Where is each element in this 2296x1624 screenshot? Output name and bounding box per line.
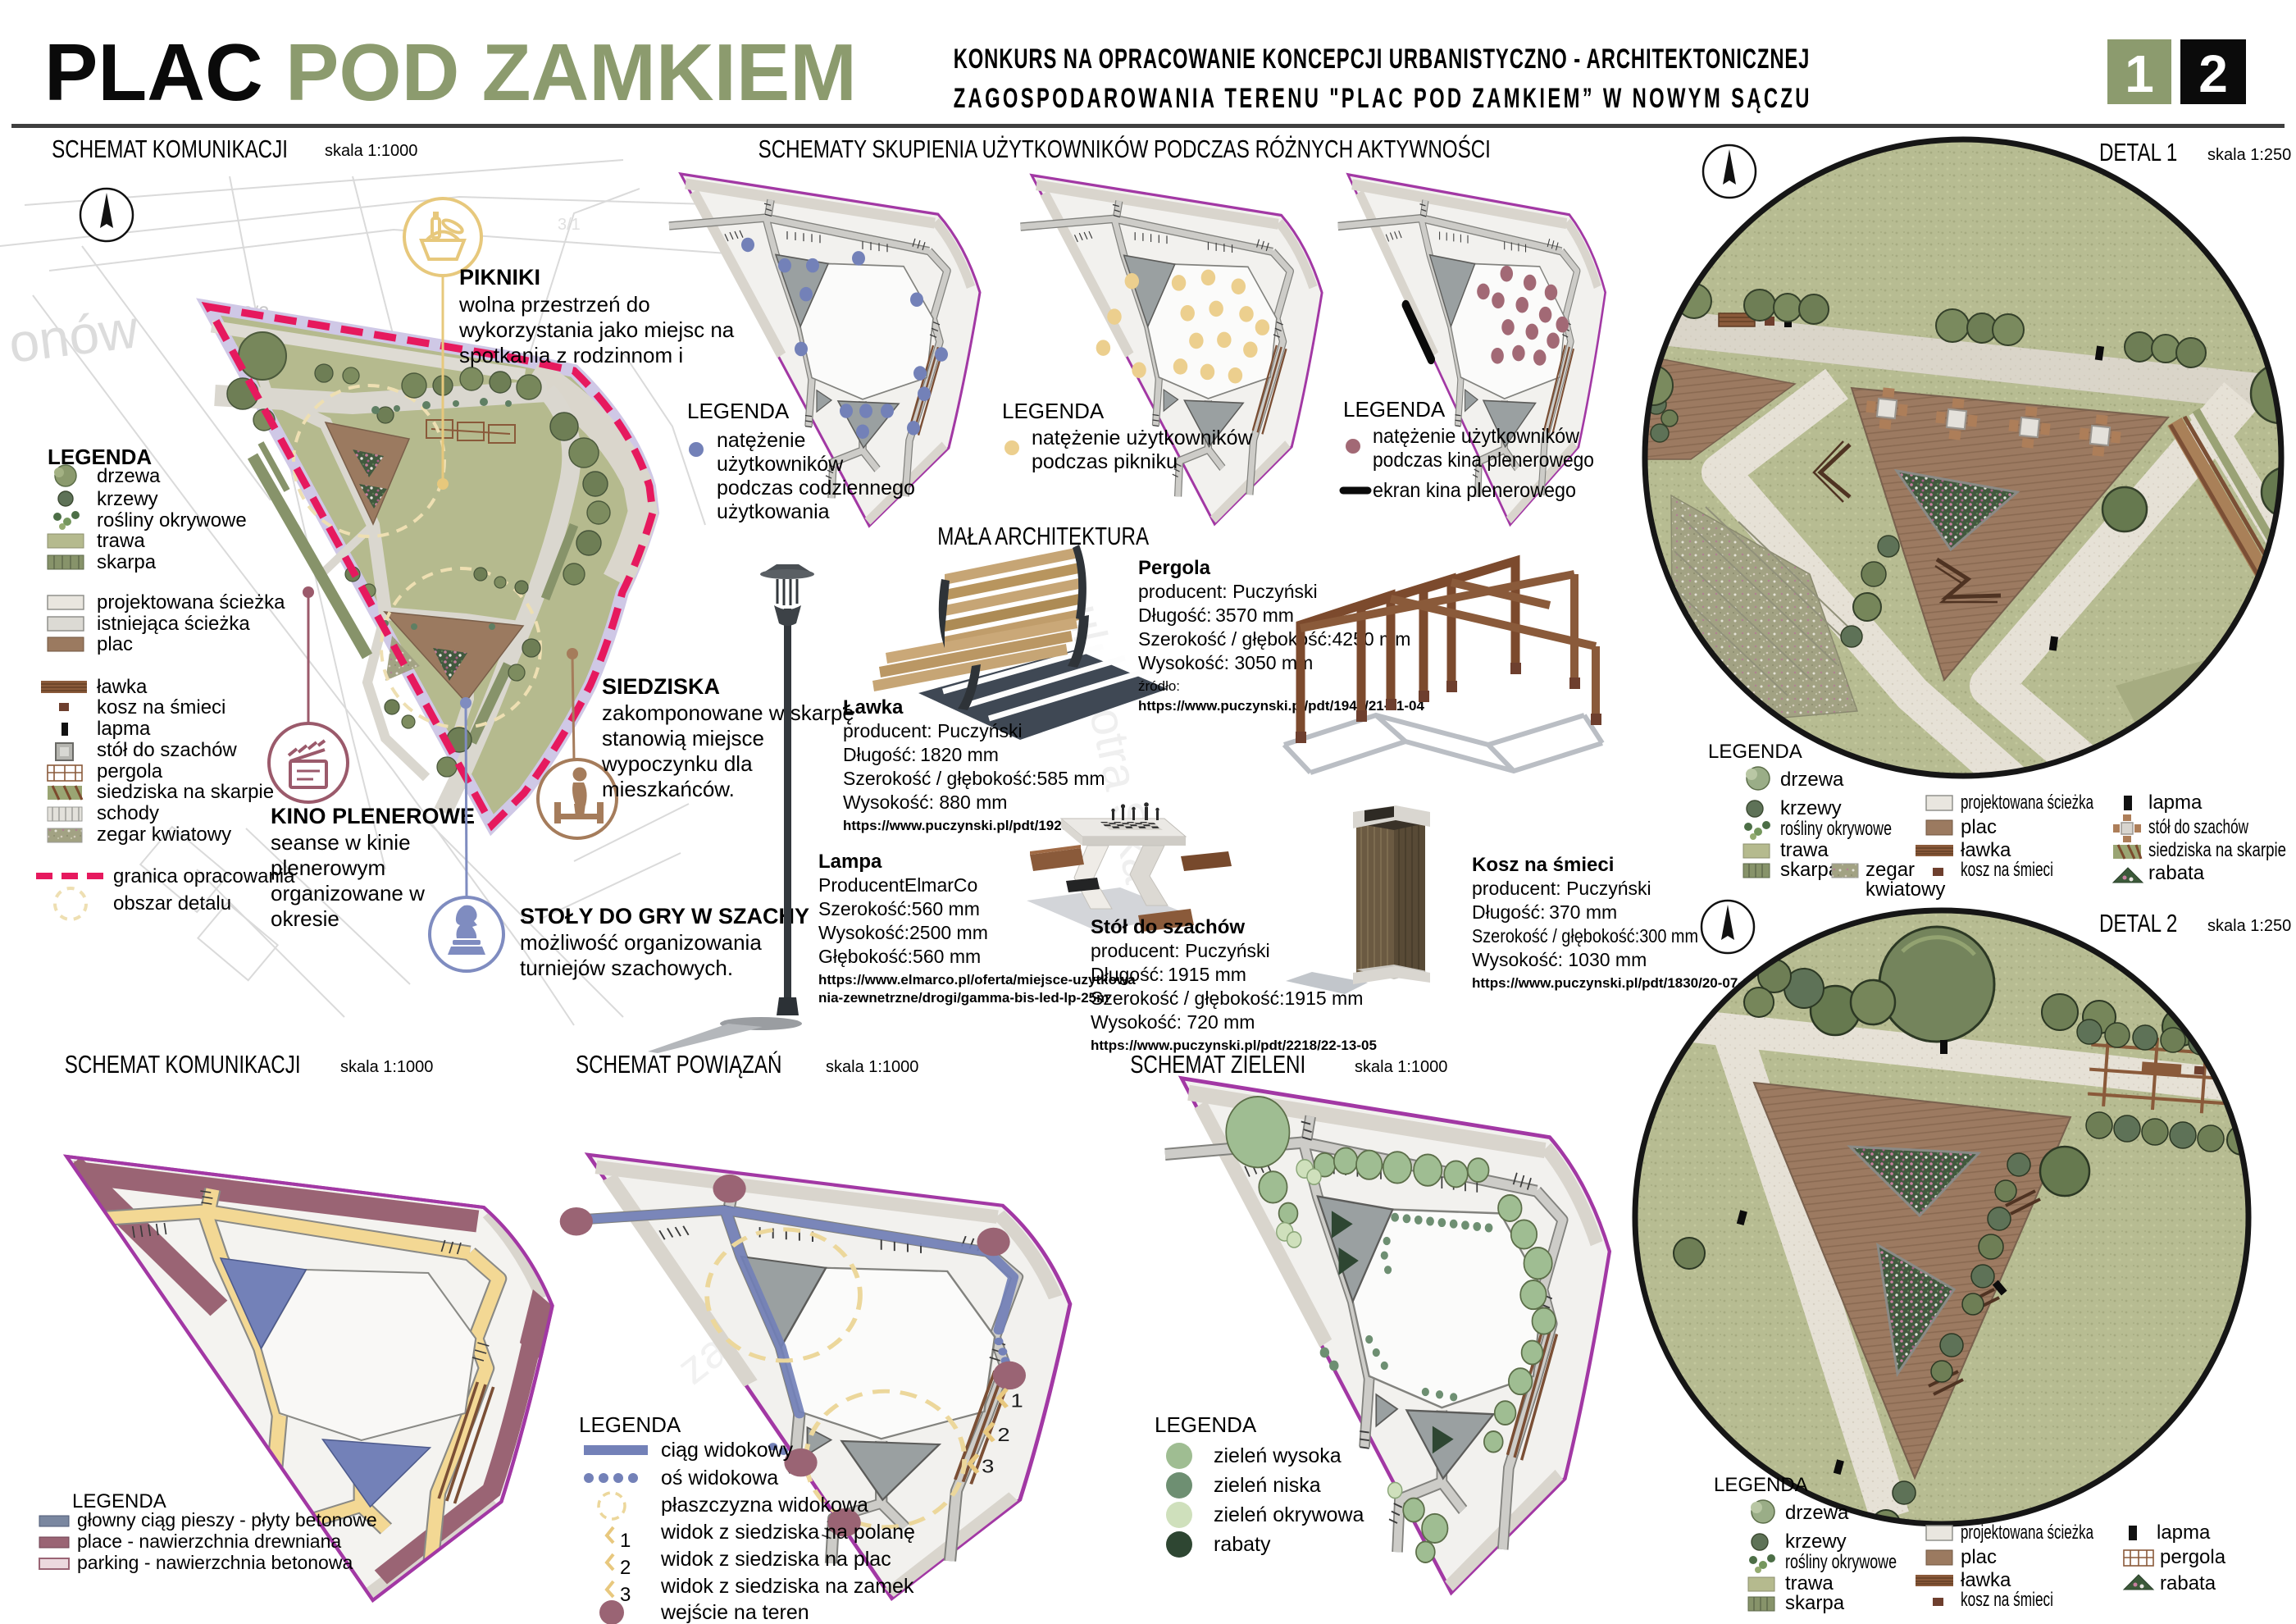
svg-text:wypoczynku dla: wypoczynku dla bbox=[601, 751, 753, 776]
svg-text:rabata: rabata bbox=[2160, 1572, 2216, 1594]
svg-text:skarpa: skarpa bbox=[1780, 859, 1840, 881]
svg-text:plac: plac bbox=[1961, 816, 1997, 838]
svg-text:widok z siedziska na plac: widok z siedziska na plac bbox=[660, 1548, 891, 1571]
svg-text:kwiatowy: kwiatowy bbox=[1865, 878, 1945, 901]
svg-text:zieleń niska: zieleń niska bbox=[1214, 1474, 1321, 1497]
svg-text:LEGENDA: LEGENDA bbox=[1002, 399, 1105, 423]
svg-text:rośliny okrywowe: rośliny okrywowe bbox=[97, 509, 247, 531]
svg-text:zieleń wysoka: zieleń wysoka bbox=[1214, 1444, 1342, 1467]
svg-text:SCHEMAT POWIĄZAŃ: SCHEMAT POWIĄZAŃ bbox=[576, 1050, 782, 1079]
svg-text:producent: Puczyński: producent: Puczyński bbox=[843, 720, 1023, 741]
svg-text:skarpa: skarpa bbox=[1785, 1592, 1845, 1614]
svg-text:skala 1:250: skala 1:250 bbox=[2207, 917, 2291, 935]
svg-text:rośliny okrywowe: rośliny okrywowe bbox=[1780, 818, 1892, 840]
svg-text:schody: schody bbox=[97, 802, 159, 824]
svg-text:https://www.puczynski.pl/pdt/1: https://www.puczynski.pl/pdt/1943/21-31-… bbox=[1138, 698, 1424, 714]
svg-text:STOŁY DO GRY W SZACHY: STOŁY DO GRY W SZACHY bbox=[520, 904, 809, 928]
svg-text:krzewy: krzewy bbox=[1780, 797, 1842, 819]
svg-text:Długość: 3570 mm: Długość: 3570 mm bbox=[1138, 604, 1294, 626]
svg-text:LEGENDA: LEGENDA bbox=[1714, 1474, 1808, 1496]
svg-text:organizowane w: organizowane w bbox=[271, 881, 425, 906]
svg-text:KONKURS NA OPRACOWANIE KONCEPC: KONKURS NA OPRACOWANIE KONCEPCJI URBANIS… bbox=[954, 43, 1810, 75]
svg-text:zakomponowane w skarpę: zakomponowane w skarpę bbox=[602, 700, 854, 725]
svg-text:parking - nawierzchnia betonow: parking - nawierzchnia betonowa bbox=[77, 1552, 353, 1573]
svg-text:Wysokość: 1030 mm: Wysokość: 1030 mm bbox=[1472, 949, 1647, 970]
svg-text:MAŁA ARCHITEKTURA: MAŁA ARCHITEKTURA bbox=[937, 522, 1149, 550]
svg-text:1: 1 bbox=[1011, 1390, 1023, 1412]
svg-text:3: 3 bbox=[620, 1584, 631, 1606]
svg-text:podczas codziennego: podczas codziennego bbox=[717, 477, 915, 500]
svg-text:drzewa: drzewa bbox=[1780, 769, 1844, 791]
svg-text:Długość: 1820 mm: Długość: 1820 mm bbox=[843, 744, 999, 765]
svg-text:ekran kina plenerowego: ekran kina plenerowego bbox=[1373, 479, 1576, 502]
svg-text:2: 2 bbox=[2198, 44, 2228, 103]
svg-text:LEGENDA: LEGENDA bbox=[1155, 1412, 1257, 1437]
svg-text:plenerowym: plenerowym bbox=[271, 855, 385, 880]
svg-text:obszar detalu: obszar detalu bbox=[113, 892, 231, 915]
svg-text:drzewa: drzewa bbox=[1785, 1502, 1849, 1524]
svg-text:stanowią miejsce: stanowią miejsce bbox=[602, 726, 764, 750]
svg-text:oś widokowa: oś widokowa bbox=[661, 1467, 778, 1489]
svg-text:2: 2 bbox=[620, 1557, 631, 1579]
svg-text:plac: plac bbox=[1961, 1546, 1997, 1568]
svg-text:https://www.elmarco.pl/oferta/: https://www.elmarco.pl/oferta/miejsce-uz… bbox=[818, 972, 1136, 988]
svg-text:rabata: rabata bbox=[2148, 862, 2205, 884]
svg-text:użytkowania: użytkowania bbox=[717, 500, 830, 523]
svg-text:lapma: lapma bbox=[2148, 791, 2203, 814]
svg-text:skala 1:1000: skala 1:1000 bbox=[826, 1058, 918, 1076]
svg-text:PLAC POD ZAMKIEM: PLAC POD ZAMKIEM bbox=[44, 27, 857, 117]
svg-text:producent: Puczyński: producent: Puczyński bbox=[1138, 581, 1318, 602]
svg-text:wolna przestrzeń do: wolna przestrzeń do bbox=[458, 292, 650, 317]
svg-text:SCHEMATY SKUPIENIA UŻYTKOWNIKÓ: SCHEMATY SKUPIENIA UŻYTKOWNIKÓW PODCZAS … bbox=[758, 134, 1491, 163]
svg-text:podczas kina plenerowego: podczas kina plenerowego bbox=[1373, 449, 1594, 472]
svg-text:ciąg widokowy: ciąg widokowy bbox=[661, 1439, 794, 1462]
svg-text:LEGENDA: LEGENDA bbox=[1708, 741, 1802, 763]
svg-text:krzewy: krzewy bbox=[97, 488, 158, 510]
svg-text:Lampa: Lampa bbox=[818, 851, 882, 873]
svg-text:pergola: pergola bbox=[2160, 1546, 2226, 1568]
svg-text:ZAGOSPODAROWANIA TERENU "PLAC: ZAGOSPODAROWANIA TERENU "PLAC POD ZAMKIE… bbox=[954, 83, 1810, 114]
svg-text:LEGENDA: LEGENDA bbox=[687, 399, 790, 423]
svg-text:zegar kwiatowy: zegar kwiatowy bbox=[97, 823, 231, 846]
svg-text:drzewa: drzewa bbox=[97, 465, 161, 487]
svg-text:trawa: trawa bbox=[1780, 839, 1829, 861]
svg-text:onów: onów bbox=[6, 298, 142, 374]
svg-text:skala 1:1000: skala 1:1000 bbox=[325, 142, 417, 160]
svg-text:2: 2 bbox=[997, 1425, 1009, 1446]
svg-text:natężenie: natężenie bbox=[717, 429, 805, 452]
svg-text:Szerokość:560 mm: Szerokość:560 mm bbox=[818, 898, 980, 919]
svg-text:Głębokość:560 mm: Głębokość:560 mm bbox=[818, 946, 981, 967]
svg-text:projektowana ścieżka: projektowana ścieżka bbox=[97, 591, 285, 614]
svg-text:mieszkańców.: mieszkańców. bbox=[602, 777, 735, 801]
svg-text:Szerokość / głębokość:585 mm: Szerokość / głębokość:585 mm bbox=[843, 768, 1105, 789]
svg-text:możliwość organizowania: możliwość organizowania bbox=[520, 930, 762, 955]
svg-text:Wysokość: 3050 mm: Wysokość: 3050 mm bbox=[1138, 652, 1313, 673]
svg-text:Pergola: Pergola bbox=[1138, 557, 1211, 579]
svg-text:place - nawierzchnia drewniana: place - nawierzchnia drewniana bbox=[77, 1530, 341, 1552]
svg-text:DETAL 2: DETAL 2 bbox=[2099, 909, 2177, 937]
svg-text:SCHEMAT ZIELENI: SCHEMAT ZIELENI bbox=[1130, 1050, 1305, 1079]
svg-text:SCHEMAT KOMUNIKACJI: SCHEMAT KOMUNIKACJI bbox=[65, 1050, 301, 1079]
svg-text:SIEDZISKA: SIEDZISKA bbox=[602, 674, 720, 699]
svg-text:skarpa: skarpa bbox=[97, 551, 157, 573]
svg-text:ławka: ławka bbox=[1961, 1569, 2011, 1591]
svg-text:zieleń okrywowa: zieleń okrywowa bbox=[1214, 1503, 1364, 1526]
svg-text:podczas pikniku: podczas pikniku bbox=[1032, 450, 1178, 473]
svg-text:stół do szachów: stół do szachów bbox=[2148, 816, 2248, 838]
svg-text:seanse w kinie: seanse w kinie bbox=[271, 830, 411, 855]
svg-text:DETAL 1: DETAL 1 bbox=[2099, 138, 2177, 167]
svg-text:spotkania z rodzinnom i: spotkania z rodzinnom i bbox=[459, 343, 683, 367]
svg-text:1: 1 bbox=[2125, 44, 2154, 103]
svg-text:plac: plac bbox=[97, 633, 133, 655]
svg-text:PIKNIKI: PIKNIKI bbox=[459, 265, 540, 290]
svg-text:widok z siedziska na zamek: widok z siedziska na zamek bbox=[660, 1575, 914, 1598]
svg-text:ławka: ławka bbox=[97, 676, 148, 698]
svg-text:producent: Puczyński: producent: Puczyński bbox=[1091, 940, 1270, 961]
svg-text:Wysokość: 720 mm: Wysokość: 720 mm bbox=[1091, 1011, 1255, 1033]
svg-text:Stół do szachów: Stół do szachów bbox=[1091, 916, 1245, 938]
svg-text:producent: Puczyński: producent: Puczyński bbox=[1472, 878, 1651, 899]
svg-text:ławka: ławka bbox=[1961, 839, 2011, 861]
svg-text:krzewy: krzewy bbox=[1785, 1530, 1847, 1553]
svg-text:Szerokość / głębokość:300 mm: Szerokość / głębokość:300 mm bbox=[1472, 925, 1698, 947]
svg-text:ProducentElmarCo: ProducentElmarCo bbox=[818, 874, 977, 896]
svg-text:1: 1 bbox=[620, 1530, 631, 1552]
svg-text:projektowana ścieżka: projektowana ścieżka bbox=[1961, 1521, 2093, 1544]
svg-text:stół do szachów: stół do szachów bbox=[97, 739, 237, 761]
svg-text:użytkowników: użytkowników bbox=[717, 453, 844, 476]
svg-text:Kosz na śmieci: Kosz na śmieci bbox=[1472, 854, 1614, 876]
svg-text:Szerokość / głębokość:1915 mm: Szerokość / głębokość:1915 mm bbox=[1091, 988, 1363, 1009]
svg-text:SCHEMAT KOMUNIKACJI: SCHEMAT KOMUNIKACJI bbox=[52, 135, 288, 163]
svg-text:Szerokość / głębokość:4250 mm: Szerokość / głębokość:4250 mm bbox=[1138, 628, 1410, 650]
svg-text:3: 3 bbox=[982, 1456, 994, 1477]
svg-text:siedziska na skarpie: siedziska na skarpie bbox=[2148, 839, 2286, 861]
svg-text:trawa: trawa bbox=[1785, 1572, 1834, 1594]
svg-text:natężenie użytkowników: natężenie użytkowników bbox=[1032, 427, 1254, 449]
svg-text:Ławka: Ławka bbox=[843, 696, 904, 718]
svg-text:wejście na teren: wejście na teren bbox=[660, 1601, 809, 1624]
svg-text:źródło:: źródło: bbox=[1138, 678, 1180, 694]
svg-text:Długość: 370 mm: Długość: 370 mm bbox=[1472, 901, 1617, 923]
svg-text:lapma: lapma bbox=[2157, 1521, 2211, 1544]
svg-text:KINO PLENEROWE: KINO PLENEROWE bbox=[271, 804, 475, 828]
svg-text:rośliny okrywowe: rośliny okrywowe bbox=[1785, 1551, 1897, 1573]
svg-text:nia-zewnetrzne/drogi/gamma-bis: nia-zewnetrzne/drogi/gamma-bis-led-lp-25… bbox=[818, 990, 1109, 1006]
svg-text:projektowana ścieżka: projektowana ścieżka bbox=[1961, 791, 2093, 814]
svg-text:skala 1:1000: skala 1:1000 bbox=[1355, 1058, 1447, 1076]
svg-text:widok z siedziska na polanę: widok z siedziska na polanę bbox=[660, 1521, 915, 1544]
svg-text:kosz na śmieci: kosz na śmieci bbox=[97, 696, 225, 718]
svg-text:turniejów szachowych.: turniejów szachowych. bbox=[520, 956, 733, 980]
svg-text:głowny ciąg pieszy - płyty bet: głowny ciąg pieszy - płyty betonowe bbox=[77, 1509, 377, 1530]
svg-text:kosz na śmieci: kosz na śmieci bbox=[1961, 1589, 2053, 1611]
svg-text:Wysokość: 880 mm: Wysokość: 880 mm bbox=[843, 791, 1007, 813]
svg-text:LEGENDA: LEGENDA bbox=[1343, 397, 1446, 422]
svg-text:lapma: lapma bbox=[97, 718, 151, 740]
svg-text:płaszczyzna widokowa: płaszczyzna widokowa bbox=[661, 1494, 868, 1517]
svg-text:okresie: okresie bbox=[271, 906, 339, 931]
svg-text:3/1: 3/1 bbox=[558, 216, 581, 234]
svg-text:granica opracowania: granica opracowania bbox=[113, 865, 295, 887]
svg-text:siedziska na skarpie: siedziska na skarpie bbox=[97, 781, 274, 803]
svg-text:skala 1:250: skala 1:250 bbox=[2207, 146, 2291, 164]
svg-text:wykorzystania jako miejsc na: wykorzystania jako miejsc na bbox=[458, 317, 735, 342]
svg-text:LEGENDA: LEGENDA bbox=[579, 1412, 681, 1437]
svg-text:zegar: zegar bbox=[1865, 859, 1915, 881]
svg-text:rabaty: rabaty bbox=[1214, 1533, 1271, 1556]
svg-text:Wysokość:2500 mm: Wysokość:2500 mm bbox=[818, 922, 988, 943]
svg-text:natężenie użytkowników: natężenie użytkowników bbox=[1373, 425, 1580, 448]
svg-text:istniejąca ścieżka: istniejąca ścieżka bbox=[97, 613, 250, 635]
svg-text:skala 1:1000: skala 1:1000 bbox=[340, 1058, 433, 1076]
svg-text:trawa: trawa bbox=[97, 530, 145, 552]
svg-text:kosz na śmieci: kosz na śmieci bbox=[1961, 859, 2053, 881]
svg-text:pergola: pergola bbox=[97, 760, 163, 782]
